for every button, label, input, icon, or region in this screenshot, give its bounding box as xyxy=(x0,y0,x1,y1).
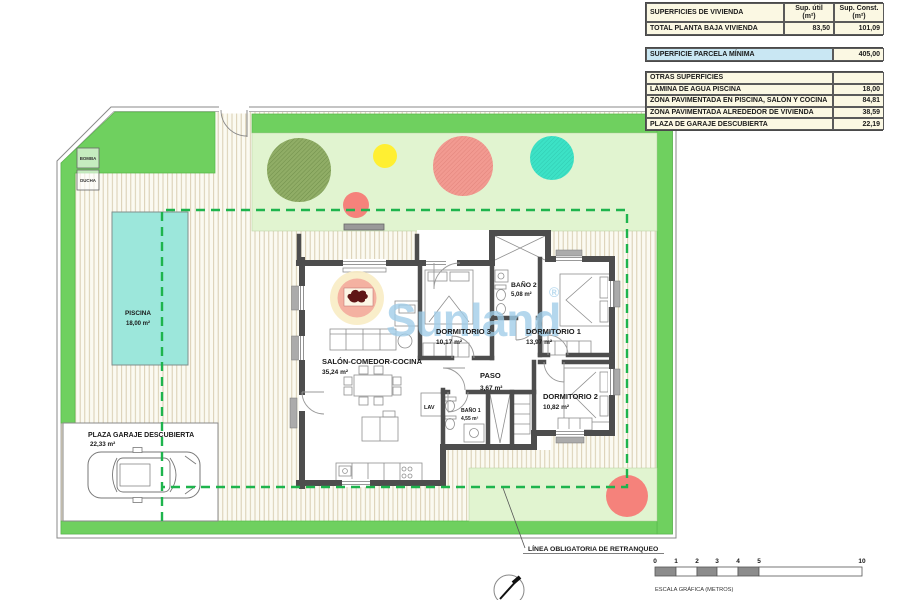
tree-teal xyxy=(530,136,574,180)
scale-tick-4: 4 xyxy=(736,558,740,565)
room-label-dorm1: DORMITORIO 1 xyxy=(526,327,581,336)
bomba-label: BOMBA xyxy=(80,156,97,161)
table-row: TOTAL PLANTA BAJA VIVIENDA 83,50 101,09 xyxy=(646,22,882,35)
tree-salmon-large xyxy=(433,136,493,196)
col-sup-util-unit: (m²) xyxy=(802,13,815,21)
room-label-salon: SALÓN-COMEDOR-COCINA xyxy=(322,357,423,366)
otras-table: OTRAS SUPERFICIES LÁMINA DE AGUA PISCINA… xyxy=(645,71,883,131)
north-arrow-icon xyxy=(494,575,524,600)
room-label-paso: PASO xyxy=(480,371,501,380)
pool-area: 18,00 m² xyxy=(126,320,150,327)
pool xyxy=(112,212,188,365)
parcela-table: SUPERFICIE PARCELA MÍNIMA 405,00 xyxy=(645,47,883,62)
tree-yellow xyxy=(373,144,397,168)
tree-salmon-small xyxy=(343,192,369,218)
room-area-salon: 35,24 m² xyxy=(322,369,349,376)
ducha-label: DUCHA xyxy=(80,178,97,183)
otras-row3-value: 22,19 xyxy=(833,118,884,130)
room-area-paso: 3,67 m² xyxy=(480,385,503,392)
col-sup-const: Sup. Const. (m²) xyxy=(834,3,884,22)
lawn-top-strip xyxy=(252,114,658,133)
otras-title-empty xyxy=(833,72,884,84)
row-total-label: TOTAL PLANTA BAJA VIVIENDA xyxy=(646,22,784,35)
viviendas-table-title: SUPERFICIES DE VIVIENDA xyxy=(646,3,784,22)
room-area-bano2: 5,08 m² xyxy=(511,291,532,298)
scale-tick-0: 0 xyxy=(653,558,657,565)
parcela-value: 405,00 xyxy=(833,48,884,61)
car xyxy=(88,448,200,503)
surface-tables: SUPERFICIES DE VIVIENDA Sup. útil (m²) S… xyxy=(645,2,883,131)
otras-row1-value: 84,81 xyxy=(833,95,884,107)
table-row: ZONA PAVIMENTADA EN PISCINA, SALÓN Y COC… xyxy=(646,95,882,107)
garage-label: PLAZA GARAJE DESCUBIERTA xyxy=(88,432,194,439)
otras-row1-label: ZONA PAVIMENTADA EN PISCINA, SALÓN Y COC… xyxy=(646,95,833,107)
scale-tick-3: 3 xyxy=(715,558,719,565)
watermark-registered: ® xyxy=(549,284,560,300)
lawn-bottom-strip xyxy=(61,521,657,534)
table-row: PLAZA DE GARAJE DESCUBIERTA 22,19 xyxy=(646,118,882,130)
pool-label: PISCINA xyxy=(125,310,151,317)
retranqueo-label: LÍNEA OBLIGATORIA DE RETRANQUEO xyxy=(528,544,658,553)
room-label-bano2: BAÑO 2 xyxy=(511,280,537,289)
room-label-bano1: BAÑO 1 xyxy=(461,407,481,414)
col-sup-const-line1: Sup. Const. xyxy=(840,5,879,13)
room-area-dorm2: 10,82 m² xyxy=(543,404,570,411)
room-area-bano1: 4,55 m² xyxy=(461,416,479,422)
parcela-label: SUPERFICIE PARCELA MÍNIMA xyxy=(646,48,833,61)
tree-salmon-bottom xyxy=(606,475,648,517)
tree-olive xyxy=(267,138,331,202)
row-total-util: 83,50 xyxy=(784,22,834,35)
col-sup-util-line1: Sup. útil xyxy=(795,5,823,13)
room-label-lav: LAV xyxy=(424,405,435,411)
scale-tick-6: 10 xyxy=(858,558,866,565)
col-sup-util: Sup. útil (m²) xyxy=(784,3,834,22)
otras-row3-label: PLAZA DE GARAJE DESCUBIERTA xyxy=(646,118,833,130)
otras-row0-label: LÁMINA DE AGUA PISCINA xyxy=(646,84,833,96)
room-area-dorm1: 13,97 m² xyxy=(526,339,553,346)
otras-row2-value: 38,59 xyxy=(833,107,884,119)
scale-tick-1: 1 xyxy=(674,558,678,565)
row-total-const: 101,09 xyxy=(834,22,884,35)
lawn-right-strip xyxy=(657,114,673,534)
table-row: ZONA PAVIMENTADA ALREDEDOR DE VIVIENDA 3… xyxy=(646,107,882,119)
room-area-dorm3: 10,17 m² xyxy=(436,339,463,346)
table-row: LÁMINA DE AGUA PISCINA 18,00 xyxy=(646,84,882,96)
room-label-dorm3: DORMITORIO 3 xyxy=(436,327,491,336)
garage-area-label: 22,33 m² xyxy=(90,441,115,448)
viviendas-table: SUPERFICIES DE VIVIENDA Sup. útil (m²) S… xyxy=(645,2,883,36)
col-sup-const-unit: (m²) xyxy=(852,13,865,21)
otras-row2-label: ZONA PAVIMENTADA ALREDEDOR DE VIVIENDA xyxy=(646,107,833,119)
scale-tick-2: 2 xyxy=(695,558,699,565)
table-row: SUPERFICIE PARCELA MÍNIMA 405,00 xyxy=(646,48,882,61)
room-label-dorm2: DORMITORIO 2 xyxy=(543,392,598,401)
floor-plan-page: BOMBA DUCHA xyxy=(0,0,900,600)
otras-title: OTRAS SUPERFICIES xyxy=(646,72,833,84)
scale-caption: ESCALA GRÁFICA (METROS) xyxy=(655,586,733,593)
scale-bar: 0 1 2 3 4 5 10 ESCALA GRÁFICA (METROS) xyxy=(653,558,866,593)
scale-tick-5: 5 xyxy=(757,558,761,565)
otras-row0-value: 18,00 xyxy=(833,84,884,96)
table-row: OTRAS SUPERFICIES xyxy=(646,72,882,84)
